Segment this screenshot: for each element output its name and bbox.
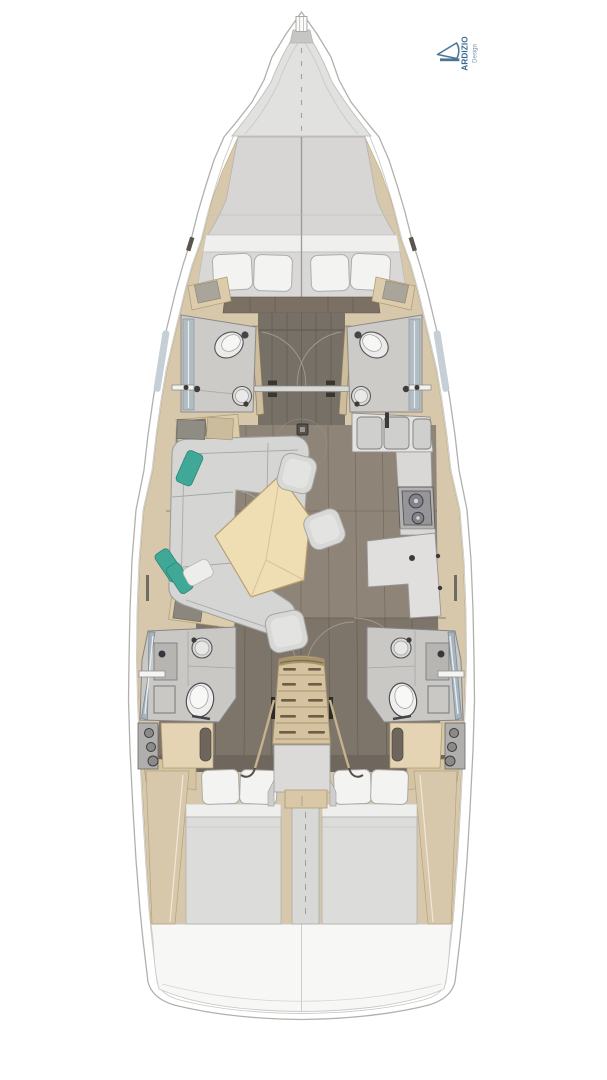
svg-text:Design: Design — [473, 44, 479, 63]
svg-text:ARDIZIO: ARDIZIO — [461, 36, 470, 71]
